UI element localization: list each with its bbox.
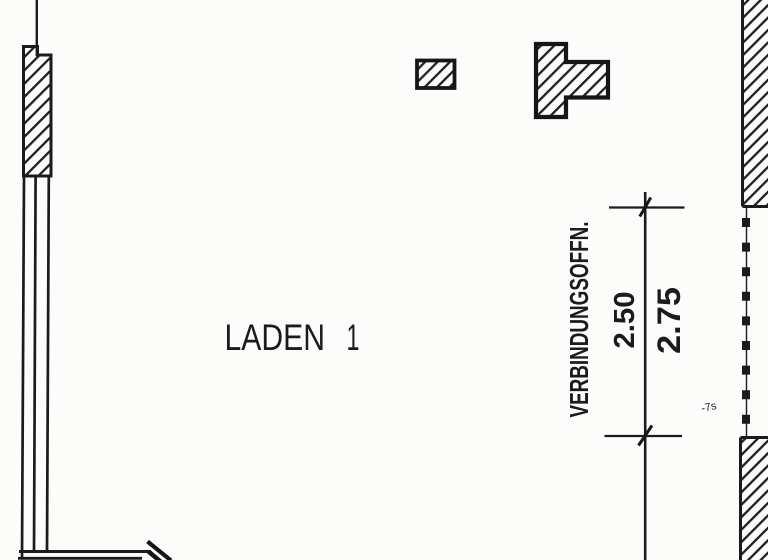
svg-text:2.75: 2.75	[651, 287, 687, 354]
svg-text:-7s: -7s	[700, 400, 718, 415]
svg-text:VERBINDUNGSOFFN.: VERBINDUNGSOFFN.	[564, 222, 594, 418]
svg-text:1: 1	[347, 316, 360, 358]
svg-text:2.50: 2.50	[609, 292, 641, 349]
svg-text:LADEN: LADEN	[225, 316, 326, 358]
